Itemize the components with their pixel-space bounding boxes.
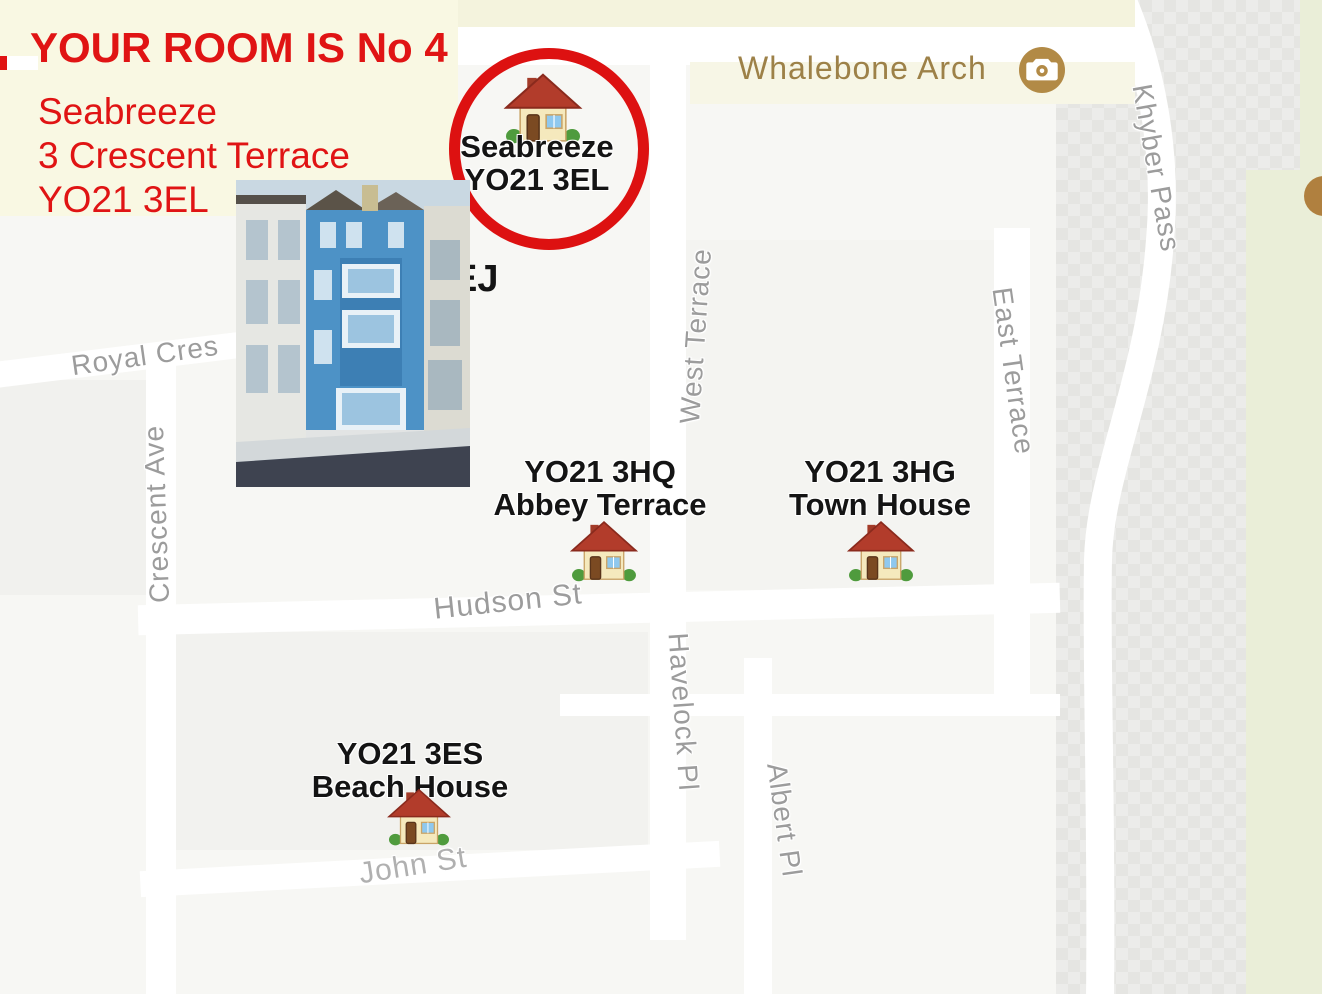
highlight-name: Seabreeze	[437, 130, 637, 163]
property-postcode: YO21 3HG	[765, 455, 995, 488]
street-label-crescent-ave: Crescent Ave	[138, 424, 176, 603]
house-icon	[387, 786, 451, 846]
red-mark	[0, 56, 7, 70]
property-name: Abbey Terrace	[460, 488, 740, 521]
camera-icon	[1019, 47, 1065, 93]
address-line-street: 3 Crescent Terrace	[38, 134, 350, 178]
house-icon	[847, 518, 915, 582]
map-canvas: Royal Cres Crescent Ave West Terrace Eas…	[0, 0, 1322, 994]
room-heading: YOUR ROOM IS No 4	[30, 24, 448, 72]
cream-overlay	[455, 0, 1135, 27]
property-postcode: YO21 3ES	[300, 737, 520, 770]
address-line-name: Seabreeze	[38, 90, 350, 134]
poi-whalebone-arch-label: Whalebone Arch	[738, 50, 987, 87]
property-town-house: YO21 3HG Town House	[765, 455, 995, 521]
property-name: Town House	[765, 488, 995, 521]
property-postcode: YO21 3HQ	[460, 455, 740, 488]
property-abbey-terrace: YO21 3HQ Abbey Terrace	[460, 455, 740, 521]
building-photo	[236, 180, 470, 487]
house-icon	[570, 518, 638, 582]
